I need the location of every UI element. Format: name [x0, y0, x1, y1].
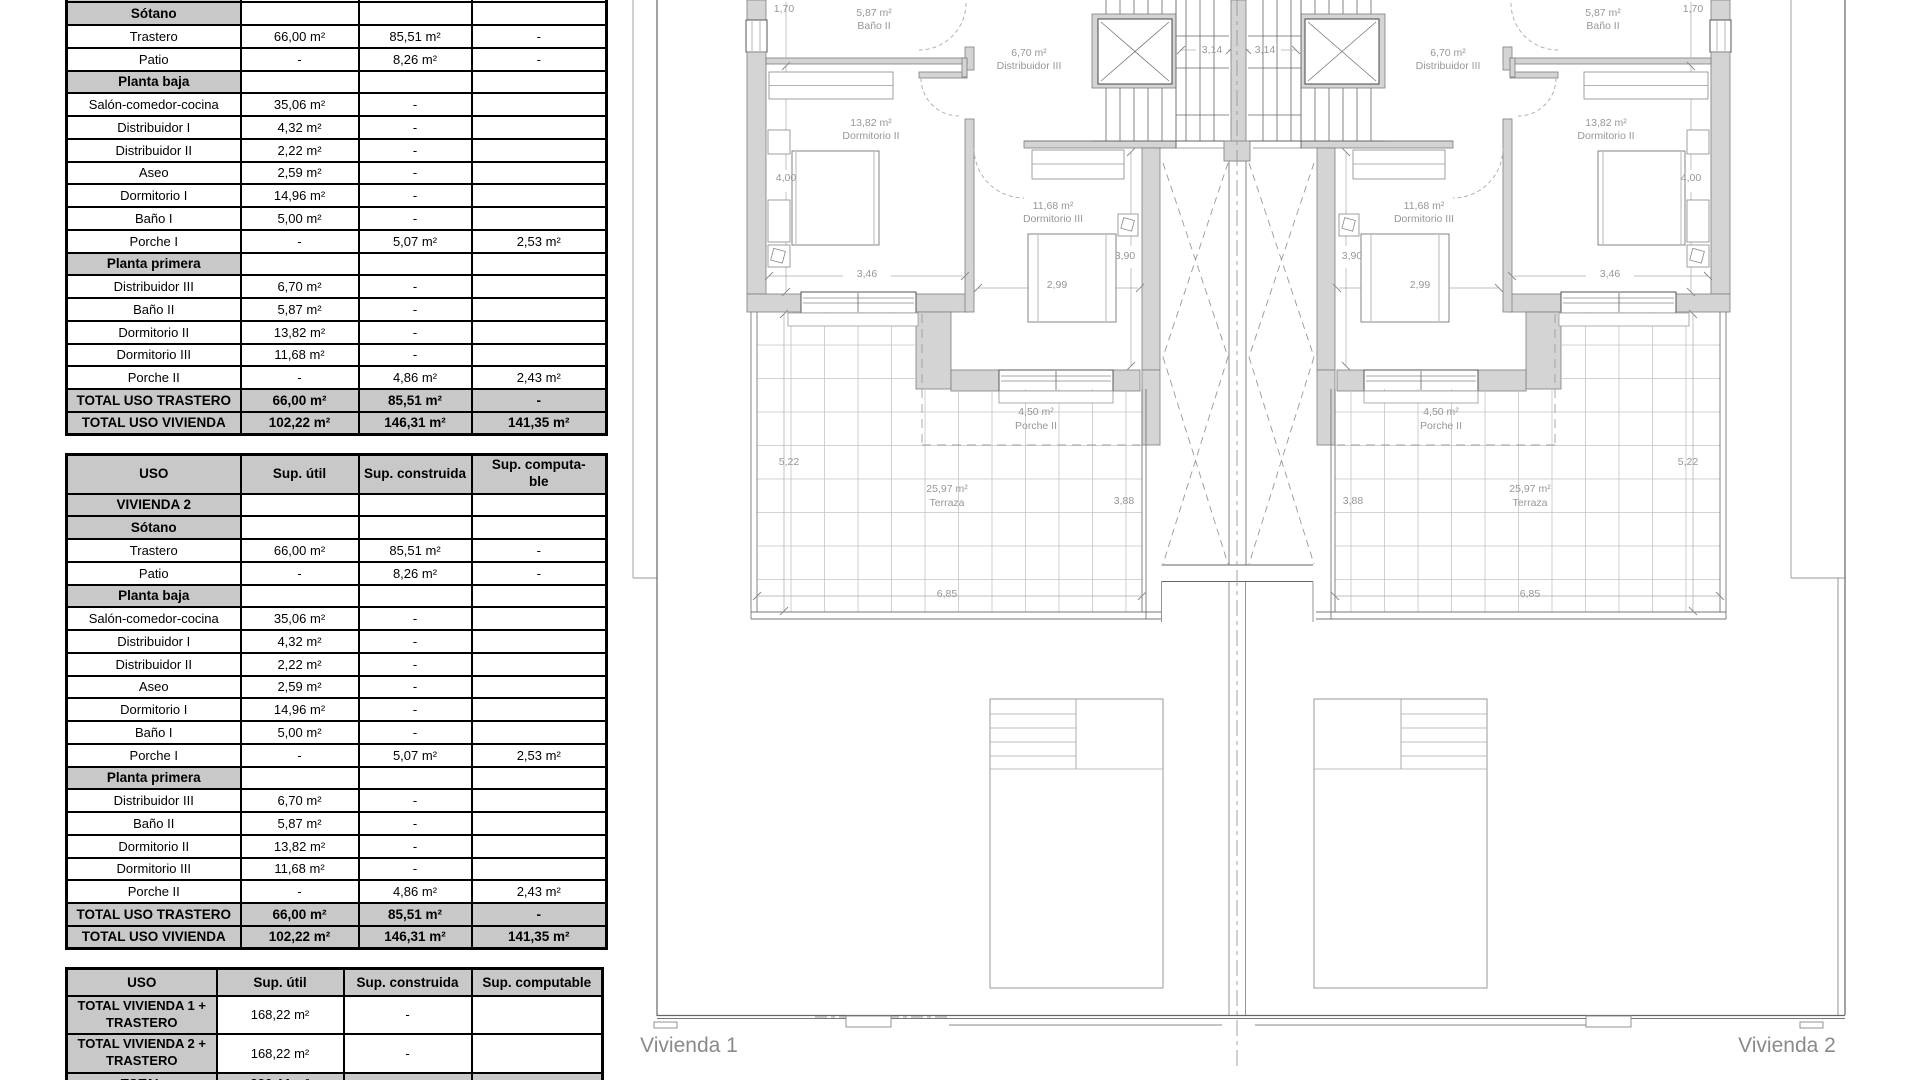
svg-text:Baño II: Baño II [1586, 20, 1619, 32]
svg-text:Vivienda 2: Vivienda 2 [1738, 1034, 1836, 1057]
svg-text:5,87 m²: 5,87 m² [1585, 7, 1621, 19]
svg-text:13,82 m²: 13,82 m² [850, 117, 892, 129]
svg-text:Dormitorio II: Dormitorio II [1577, 130, 1634, 142]
svg-text:25,97 m²: 25,97 m² [926, 483, 968, 495]
svg-text:13,82 m²: 13,82 m² [1585, 117, 1627, 129]
svg-text:11,68 m²: 11,68 m² [1404, 200, 1445, 212]
svg-text:Vivienda 1: Vivienda 1 [640, 1034, 738, 1057]
svg-text:Baño II: Baño II [857, 20, 890, 32]
svg-text:3,90: 3,90 [1115, 250, 1136, 262]
svg-text:4,50 m²: 4,50 m² [1018, 406, 1054, 418]
svg-text:3,46: 3,46 [1600, 268, 1621, 280]
svg-text:6,70 m²: 6,70 m² [1430, 47, 1466, 59]
svg-text:4,00: 4,00 [776, 172, 797, 184]
svg-text:2,99: 2,99 [1047, 279, 1068, 291]
svg-text:3,46: 3,46 [857, 268, 878, 280]
svg-text:3,88: 3,88 [1343, 495, 1364, 507]
svg-text:2,99: 2,99 [1410, 279, 1431, 291]
svg-text:3,14: 3,14 [1202, 44, 1223, 56]
svg-text:6,85: 6,85 [937, 588, 958, 600]
svg-text:1,70: 1,70 [1683, 3, 1704, 15]
svg-text:Dormitorio II: Dormitorio II [842, 130, 899, 142]
svg-text:Terraza: Terraza [1512, 497, 1547, 509]
svg-text:6,85: 6,85 [1520, 588, 1541, 600]
svg-text:25,97 m²: 25,97 m² [1509, 483, 1551, 495]
svg-text:5,22: 5,22 [1678, 456, 1699, 468]
svg-text:Distribuidor III: Distribuidor III [1416, 60, 1481, 72]
svg-text:Porche II: Porche II [1420, 420, 1462, 432]
svg-text:5,87 m²: 5,87 m² [856, 7, 892, 19]
svg-text:11,68 m²: 11,68 m² [1033, 200, 1074, 212]
svg-text:3,14: 3,14 [1255, 44, 1276, 56]
svg-text:Porche II: Porche II [1015, 420, 1057, 432]
svg-text:4,00: 4,00 [1681, 172, 1702, 184]
svg-text:3,90: 3,90 [1342, 250, 1363, 262]
svg-text:4,50 m²: 4,50 m² [1423, 406, 1459, 418]
svg-text:6,70 m²: 6,70 m² [1011, 47, 1047, 59]
svg-text:3,88: 3,88 [1114, 495, 1135, 507]
svg-text:Dormitorio III: Dormitorio III [1394, 213, 1454, 225]
svg-text:5,22: 5,22 [779, 456, 800, 468]
svg-text:Terraza: Terraza [929, 497, 964, 509]
svg-text:1,70: 1,70 [774, 3, 795, 15]
svg-text:Distribuidor III: Distribuidor III [997, 60, 1062, 72]
svg-text:Dormitorio III: Dormitorio III [1023, 213, 1083, 225]
